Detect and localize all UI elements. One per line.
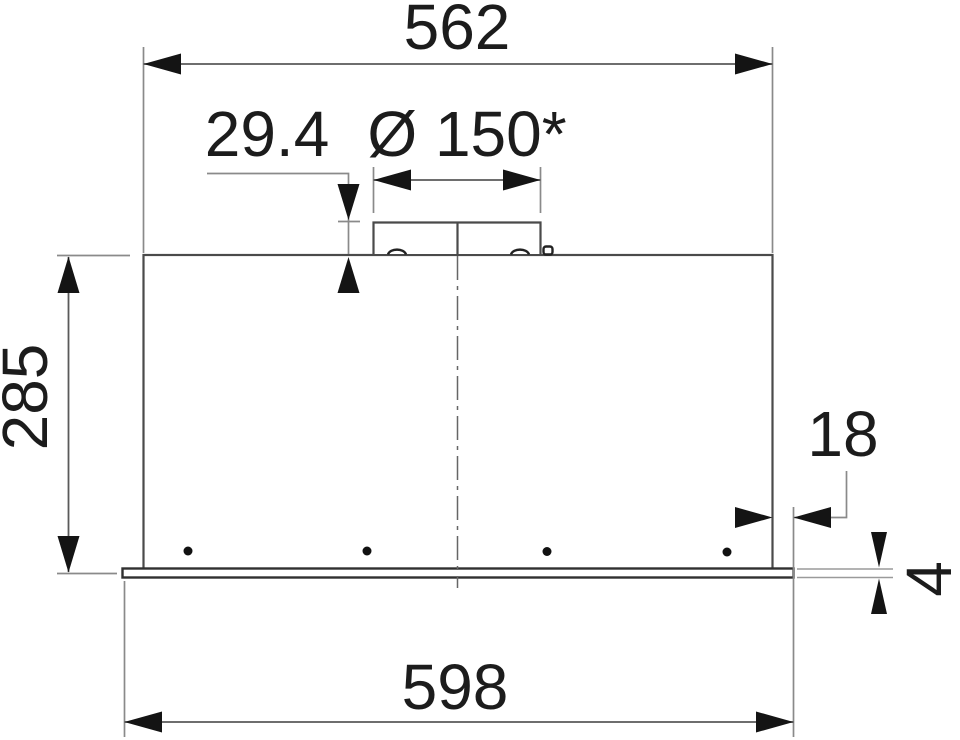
arrow-left-icon: [374, 170, 412, 191]
arrow-up-icon: [58, 257, 80, 294]
arrow-down-icon: [338, 184, 360, 220]
dim-body-height: 285: [0, 256, 130, 574]
arrow-right-icon: [503, 170, 541, 191]
dim-flange-thickness: 4: [797, 532, 960, 614]
dim-598-label: 598: [402, 651, 509, 723]
mounting-hole: [184, 547, 193, 556]
arrow-down-icon: [871, 532, 887, 568]
arrow-right-icon: [756, 712, 794, 733]
collar-clip: [544, 247, 553, 255]
dim-285-label: 285: [0, 344, 61, 451]
technical-drawing: 562 Ø 150* 29.4 285 18: [0, 0, 960, 740]
arrow-down-icon: [58, 536, 80, 573]
duct-collar: [374, 223, 553, 255]
arrow-left-icon: [125, 712, 163, 733]
arrow-left-icon: [144, 54, 182, 75]
arrow-up-icon: [871, 579, 887, 615]
mounting-hole: [723, 548, 732, 557]
arrow-left-icon: [794, 507, 832, 528]
dim-4-label: 4: [893, 561, 960, 597]
dim-150-label: Ø 150*: [367, 98, 566, 170]
dim-bottom-width: 598: [125, 581, 794, 737]
dim-29-label: 29.4: [205, 98, 330, 170]
dim-duct-diameter: Ø 150*: [367, 98, 566, 213]
arrow-right-icon: [735, 54, 773, 75]
dim-18-label: 18: [807, 398, 878, 470]
dim-29-leader: [207, 174, 349, 255]
mounting-hole: [543, 547, 552, 556]
dim-562-label: 562: [404, 0, 511, 63]
mounting-hole: [363, 547, 372, 556]
